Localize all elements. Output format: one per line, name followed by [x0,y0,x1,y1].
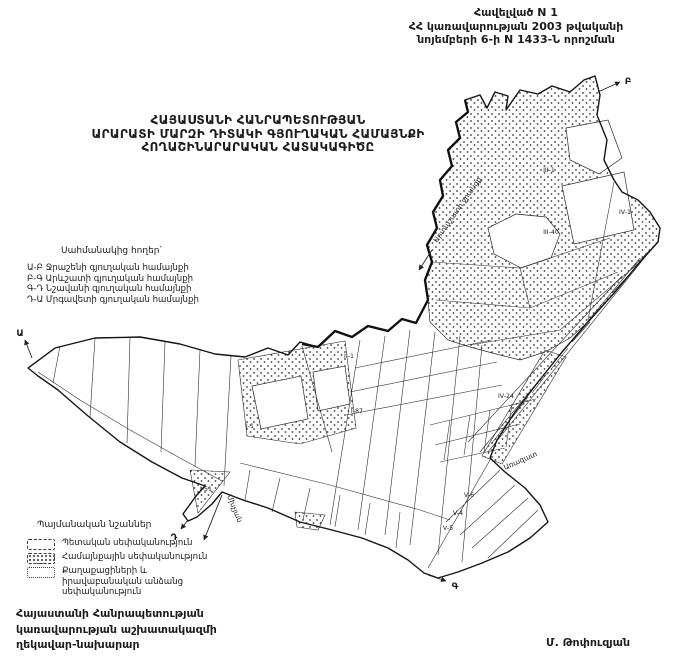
grid-tail-strips [428,460,538,568]
arrow-to-point-a [25,340,32,358]
parcel-label: III-1 [543,167,555,174]
parcel-label: I-87 [351,408,363,415]
boundary-letter-a: Ա [16,329,23,339]
signature-name: Մ. Թոփուզյան [546,636,630,649]
adjacent-lands-list: Սահմանակից հողեր՝ Ա-Բ Ջրաշենի գյուղական … [27,246,199,306]
boundary-letter-b: Բ [625,77,632,87]
adjacent-lands-heading: Սահմանակից հողեր՝ [61,246,199,257]
legend-heading: Պայմանական նշաններ [37,519,222,530]
parcel-label: V-6 [464,492,474,499]
title-line: ՀՈՂԱՇԻՆԱՐԱՐԱԿԱՆ ՀԱՏԱԿԱԳԻԾԸ [48,141,468,155]
footer-line: կառավարության աշխատակազմի [16,622,217,638]
parcel-label: V-5 [443,525,453,532]
footer-signatory: Հայաստանի Հանրապետության կառավարության ա… [16,606,217,653]
legend-swatch-private [27,567,55,578]
legend-swatch-community-dotted [27,553,55,564]
legend-swatch-state [27,539,55,550]
parcel-label: II-1 [344,353,354,360]
title-line: ԱՐԱՐԱՏԻ ՄԱՐԶԻ ԴԻՏԱԿԻ ԳՅՈՒՂԱԿԱՆ ՀԱՄԱՅՆՔԻ [48,128,468,142]
legend-item-community: Համայնքային սեփականություն [27,552,222,564]
parcel-label: III-40 [543,229,559,236]
legend-label: Քաղաքացիների և իրավաբանական անձանց սեփակ… [62,566,222,598]
legend: Պայմանական նշաններ Պետական սեփականությու… [27,519,222,600]
parcel-label: I-1 [246,423,254,430]
legend-item-private: Քաղաքացիների և իրավաբանական անձանց սեփակ… [27,566,222,598]
legend-item-state: Պետական սեփականություն [27,538,222,550]
arrow-to-point-b [598,82,620,92]
footer-line: ղեկավար-նախարար [16,637,217,653]
parcel-label: IV-1 [619,209,631,216]
cadastral-map-sheet: Արտաշատի ջրանցք Առազատ Մխչյան Ա Բ Գ Դ II… [0,0,674,668]
page-title: ՀԱՅԱՍՏԱՆԻ ՀԱՆՐԱՊԵՏՈՒԹՅԱՆ ԱՐԱՐԱՏԻ ՄԱՐԶԻ Դ… [48,114,468,155]
appendix-line: Հավելված N 1 [372,6,660,20]
appendix-line: նոյեմբերի 6-ի N 1433-Ն որոշման [372,33,660,47]
adjacent-land-item: Ա-Բ Ջրաշենի գյուղական համայնքի [27,263,199,274]
adjacent-land-item: Բ-Գ Արևշատի գյուղական համայնքի [27,274,199,285]
grid-lower-band [245,470,400,548]
boundary-letter-c: Գ [452,582,459,592]
grid-left-band [38,337,231,486]
legend-label: Պետական սեփականություն [62,538,192,549]
appendix-line: ՀՀ կառավարության 2003 թվականի [372,20,660,34]
footer-line: Հայաստանի Հանրապետության [16,606,217,622]
appendix-note: Հավելված N 1 ՀՀ կառավարության 2003 թվակա… [372,6,660,47]
adjacent-land-item: Գ-Դ Նշավանի գյուղական համայնքի [27,284,199,295]
legend-label: Համայնքային սեփականություն [62,552,207,563]
parcel-label: V-4 [453,510,463,517]
town-label: Մխչյան [225,493,244,523]
adjacent-land-item: Դ-Ա Մրգավետի գյուղական համայնքի [27,295,199,306]
parcel-label: I-51 [200,486,212,493]
title-line: ՀԱՅԱՍՏԱՆԻ ՀԱՆՐԱՊԵՏՈՒԹՅԱՆ [48,114,468,128]
parcel-label: IV-24 [498,393,514,400]
